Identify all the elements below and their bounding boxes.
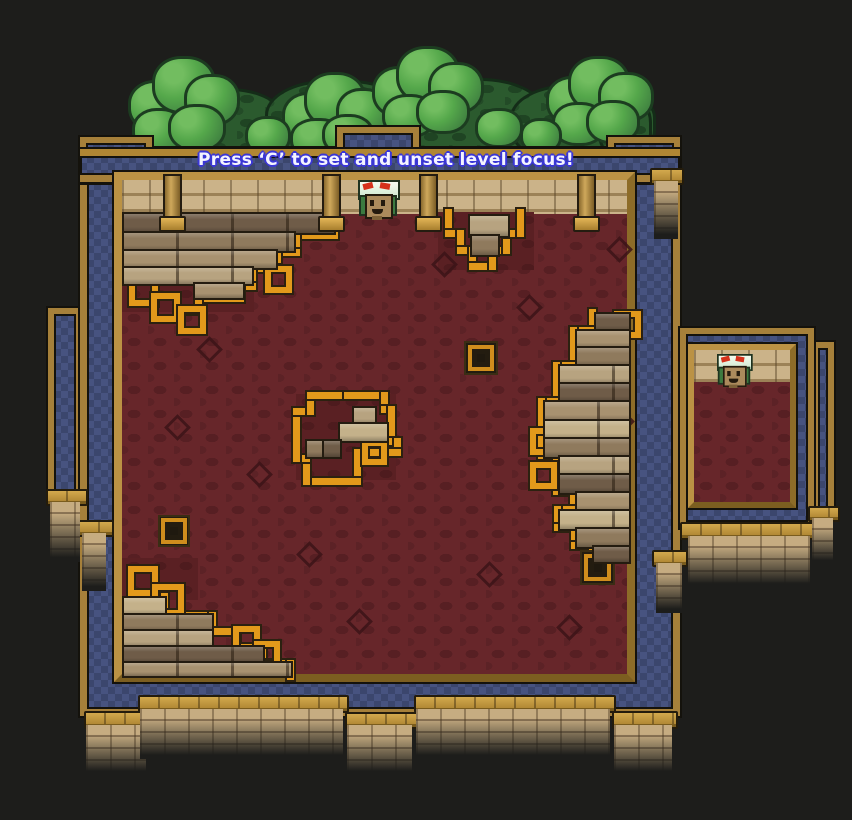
trim-hollow-square — [178, 306, 206, 334]
center-island-trim — [307, 392, 342, 399]
ceiling-pillar-capital — [159, 216, 186, 232]
wood-plank-block — [322, 439, 342, 459]
character-eye-left — [370, 200, 374, 206]
wood-plank-block — [193, 282, 245, 300]
foundation-bricks — [688, 536, 810, 588]
gold-square-ornament — [160, 517, 188, 545]
foundation-bricks — [656, 563, 682, 613]
wood-plank-block — [470, 234, 500, 257]
character-mouth — [729, 379, 738, 383]
foundation-bricks — [86, 725, 146, 775]
center-island-trim — [293, 408, 300, 462]
foundation-bricks — [140, 709, 343, 759]
character-body — [372, 216, 382, 220]
gold-square-ornament-core — [170, 527, 178, 535]
tree-puff — [168, 104, 226, 152]
wood-plank-block — [592, 545, 631, 564]
character-sprite — [358, 180, 396, 220]
trim-hollow-square — [530, 462, 557, 489]
character-eye-right — [737, 371, 740, 376]
foundation-bricks — [347, 725, 412, 775]
trim-hollow-square — [151, 293, 180, 322]
wood-plank-block — [338, 422, 389, 443]
ceiling-pillar-capital — [415, 216, 442, 232]
foundation-bricks — [654, 181, 678, 239]
hud-message: Press ‘C’ to set and unset level focus! — [130, 150, 642, 170]
foundation-bricks — [416, 709, 610, 759]
scene-layer — [0, 0, 852, 820]
character-sprite — [717, 354, 749, 388]
foundation-bricks — [614, 725, 672, 775]
gold-square-ornament — [466, 343, 496, 373]
trim-hollow-square — [265, 266, 292, 293]
tree-puff — [416, 90, 470, 134]
small-room-floor — [694, 382, 790, 502]
foundation-bricks — [812, 518, 833, 564]
game-viewport[interactable]: Press ‘C’ to set and unset level focus! — [0, 0, 852, 820]
trim-hollow-square — [362, 440, 387, 465]
gold-square-ornament-core — [594, 564, 602, 572]
wall-side-panel — [812, 342, 834, 514]
gold-square-ornament-inner — [468, 345, 495, 372]
wood-plank-block — [122, 661, 293, 678]
gold-square-ornament-core — [477, 354, 485, 362]
ceiling-pillar-capital — [318, 216, 345, 232]
character-body — [729, 385, 738, 388]
hud-message-text: Press ‘C’ to set and unset level focus! — [198, 150, 574, 170]
gold-square-ornament-inner — [161, 518, 186, 543]
center-island-trim — [303, 478, 361, 485]
tree-puff — [475, 108, 523, 148]
foundation-bricks — [82, 533, 106, 591]
top-middle-trim — [517, 209, 524, 237]
character-eye-left — [727, 371, 730, 376]
ceiling-pillar-capital — [573, 216, 600, 232]
foundation-bricks — [50, 502, 80, 562]
wall-side-panel — [48, 308, 82, 502]
character-eye-right — [381, 200, 385, 206]
